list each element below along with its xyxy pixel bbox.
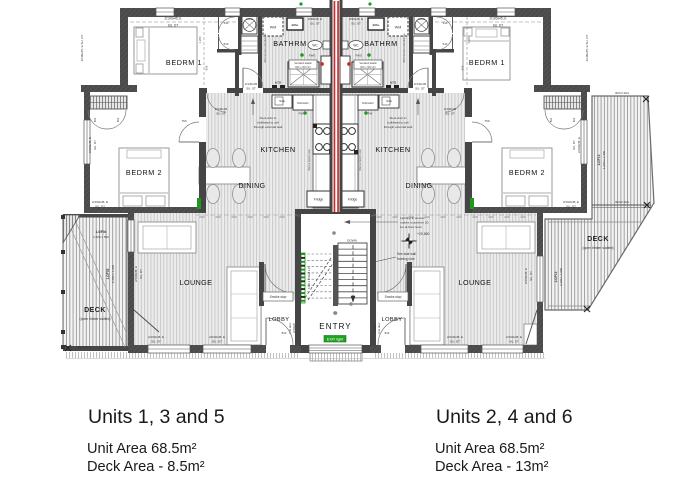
svg-text:2/90x45; E: 2/90x45; E [308, 17, 322, 21]
svg-text:SU, ST: SU, ST [151, 340, 161, 344]
svg-text:HTR: HTR [390, 81, 397, 85]
svg-text:510: 510 [224, 21, 229, 25]
svg-text:Smoke stop: Smoke stop [270, 295, 287, 299]
svg-text:Units 1, 3 and 5: Units 1, 3 and 5 [88, 406, 225, 428]
svg-text:SU, DT: SU, DT [572, 140, 576, 150]
svg-text:DECK: DECK [587, 236, 609, 243]
svg-text:908: 908 [461, 65, 465, 70]
svg-text:810: 810 [385, 331, 390, 335]
svg-text:2/140x45: 2/140x45 [245, 82, 258, 86]
svg-text:1,280: 1,280 [467, 36, 471, 43]
svg-text:HTR: HTR [275, 81, 282, 85]
svg-text:through external wall: through external wall [384, 125, 413, 129]
svg-text:DU, DT: DU, DT [450, 340, 460, 344]
svg-text:2-GF13: 2-GF13 [597, 154, 601, 165]
svg-text:Sink: Sink [386, 99, 392, 103]
svg-text:2400: 2400 [263, 216, 269, 219]
svg-text:framing note: framing note [397, 257, 415, 261]
svg-text:BEDRM 2: BEDRM 2 [126, 168, 162, 177]
svg-text:+20,650: +20,650 [417, 232, 429, 236]
svg-text:makes to achieve 20: makes to achieve 20 [400, 221, 429, 225]
svg-text:2400: 2400 [504, 216, 510, 219]
svg-text:2/140x45: 2/140x45 [444, 107, 457, 111]
svg-text:Deck Area - 13m²: Deck Area - 13m² [435, 459, 549, 475]
svg-text:2400: 2400 [440, 216, 446, 219]
svg-text:90x6.0 SHS: 90x6.0 SHS [615, 200, 629, 204]
svg-text:BEDRM 1: BEDRM 1 [469, 58, 505, 67]
svg-text:2,100 x 1,600: 2,100 x 1,600 [111, 265, 115, 284]
svg-text:Dishwshr: Dishwshr [362, 101, 374, 105]
svg-text:BATHRM: BATHRM [364, 39, 397, 48]
svg-text:2/190x45; E: 2/190x45; E [88, 137, 92, 153]
svg-text:Bths: Bths [292, 23, 299, 27]
svg-text:510: 510 [224, 42, 229, 46]
svg-text:90x6.0 SHS: 90x6.0 SHS [77, 345, 91, 349]
svg-text:Units 2, 4 and 6: Units 2, 4 and 6 [436, 406, 573, 428]
svg-text:Unit Area 68.5m²: Unit Area 68.5m² [435, 441, 545, 457]
svg-text:KITCHEN: KITCHEN [375, 145, 410, 154]
svg-text:lux at floor level: lux at floor level [400, 225, 422, 229]
svg-text:BEDRM 1: BEDRM 1 [166, 58, 202, 67]
svg-text:2/190x45; E: 2/190x45; E [524, 268, 528, 284]
svg-text:1,500 x 500: 1,500 x 500 [93, 235, 109, 239]
svg-text:SU, DT: SU, DT [168, 24, 179, 28]
svg-text:2/190x45; E SU, DT: 2/190x45; E SU, DT [80, 34, 84, 61]
svg-text:SU, ST: SU, ST [216, 112, 226, 116]
svg-text:810: 810 [572, 117, 576, 122]
svg-text:900 x 900 shr: 900 x 900 shr [295, 65, 311, 69]
svg-text:510: 510 [443, 42, 448, 46]
svg-text:WC: WC [312, 44, 318, 48]
svg-text:SU, DT: SU, DT [493, 24, 504, 28]
svg-text:Vented stack: Vented stack [294, 61, 312, 65]
svg-text:SU, ST: SU, ST [509, 340, 519, 344]
svg-text:1-GF04: 1-GF04 [96, 230, 107, 234]
svg-text:bulkhead to ceil: bulkhead to ceil [387, 121, 409, 125]
svg-text:through external wall: through external wall [254, 125, 283, 129]
svg-text:LOBBY: LOBBY [269, 317, 290, 323]
svg-text:(open timber slatted): (open timber slatted) [582, 246, 613, 250]
svg-text:DINING: DINING [239, 183, 266, 190]
svg-text:SU, DT: SU, DT [529, 271, 533, 281]
svg-text:2/140x5: 2/140x5 [292, 323, 296, 333]
svg-text:DU, DT: DU, DT [212, 340, 222, 344]
svg-text:SU, DT: SU, DT [139, 269, 143, 279]
svg-text:2400: 2400 [376, 216, 382, 219]
svg-text:Sink: Sink [279, 99, 285, 103]
svg-text:2400: 2400 [199, 216, 205, 219]
svg-text:2400: 2400 [520, 216, 526, 219]
svg-text:2/190x45; E: 2/190x45; E [577, 137, 581, 153]
svg-text:2-GF13: 2-GF13 [554, 271, 558, 282]
svg-text:1,280: 1,280 [198, 36, 202, 43]
svg-text:2/240x45; E: 2/240x45; E [447, 335, 463, 339]
svg-text:bulkhead to ceil: bulkhead to ceil [257, 121, 279, 125]
svg-text:WM: WM [395, 26, 401, 30]
svg-text:FW: FW [368, 112, 373, 116]
svg-text:510: 510 [443, 21, 448, 25]
svg-text:2,100 x 1,600: 2,100 x 1,600 [559, 268, 563, 287]
svg-text:DECK: DECK [84, 307, 106, 314]
svg-text:Smoke stop: Smoke stop [385, 295, 402, 299]
svg-text:DOWN: DOWN [347, 239, 357, 243]
svg-text:2/190x45; E: 2/190x45; E [148, 335, 164, 339]
svg-text:2/190x45; E: 2/190x45; E [563, 200, 579, 204]
svg-text:1-GF03: 1-GF03 [106, 268, 110, 279]
svg-text:See stair wall: See stair wall [397, 252, 416, 256]
svg-text:KITCHEN: KITCHEN [260, 145, 295, 154]
svg-text:Vinowe bench oven: Vinowe bench oven [359, 149, 362, 171]
svg-text:2400: 2400 [456, 216, 462, 219]
svg-text:FWG: FWG [309, 54, 316, 58]
svg-text:HWC: HWC [246, 17, 253, 21]
svg-text:SU, ST: SU, ST [415, 87, 425, 91]
svg-text:2/190x45; E SU, DT: 2/190x45; E SU, DT [585, 34, 589, 61]
svg-text:FWG: FWG [355, 54, 362, 58]
svg-text:760: 760 [484, 119, 489, 123]
svg-text:2400: 2400 [247, 216, 253, 219]
svg-text:2400: 2400 [424, 216, 430, 219]
svg-text:WC: WC [353, 44, 359, 48]
svg-text:WM: WM [270, 26, 276, 30]
svg-text:Dishwshr: Dishwshr [297, 101, 309, 105]
svg-text:Bths: Bths [373, 23, 380, 27]
svg-text:FW: FW [299, 112, 304, 116]
svg-text:SU, ST: SU, ST [445, 112, 455, 116]
svg-text:Vinowe bench oven: Vinowe bench oven [308, 149, 311, 171]
svg-text:810: 810 [549, 117, 553, 122]
svg-text:HWC: HWC [418, 17, 425, 21]
svg-text:FGB x 8 VGB x 8: FGB x 8 VGB x 8 [307, 267, 311, 289]
svg-text:LOBBY: LOBBY [382, 317, 403, 323]
svg-text:810: 810 [116, 117, 120, 122]
svg-text:Fridge: Fridge [314, 198, 324, 202]
svg-text:ENTRY: ENTRY [319, 322, 351, 331]
svg-text:2/240x45; E: 2/240x45; E [209, 335, 225, 339]
svg-text:SU, DT: SU, DT [93, 140, 97, 150]
svg-text:Flexi-duct in: Flexi-duct in [390, 116, 407, 120]
svg-text:2/190x45; E: 2/190x45; E [506, 335, 522, 339]
svg-text:2400: 2400 [279, 216, 285, 219]
svg-text:(open timber slatted): (open timber slatted) [79, 317, 110, 321]
svg-text:2400: 2400 [215, 216, 221, 219]
svg-text:810: 810 [282, 331, 287, 335]
svg-text:908: 908 [205, 65, 209, 70]
svg-text:2/190x45; E: 2/190x45; E [92, 200, 108, 204]
svg-text:SU, DT: SU, DT [95, 205, 105, 209]
svg-text:Fridge: Fridge [348, 198, 358, 202]
svg-text:2400: 2400 [392, 216, 398, 219]
svg-text:SU, DT: SU, DT [566, 205, 576, 209]
svg-text:2/90x45; E: 2/90x45; E [349, 17, 363, 21]
svg-text:LOUNGE: LOUNGE [459, 278, 492, 287]
svg-text:2400: 2400 [408, 216, 414, 219]
svg-text:2/190x45; E: 2/190x45; E [489, 17, 506, 21]
svg-text:Flexi-duct in: Flexi-duct in [260, 116, 277, 120]
svg-text:Unit Area 68.5m²: Unit Area 68.5m² [87, 441, 197, 457]
svg-text:SU, ST: SU, ST [246, 87, 256, 91]
svg-text:2400: 2400 [472, 216, 478, 219]
svg-text:Deck Area - 8.5m²: Deck Area - 8.5m² [87, 459, 205, 475]
svg-text:BEDRM 2: BEDRM 2 [509, 168, 545, 177]
svg-text:Wall mounted extraction fan: Wall mounted extraction fan [264, 33, 267, 63]
svg-text:Fire door: Fire door [377, 322, 381, 333]
svg-text:EXIT light: EXIT light [327, 338, 344, 342]
svg-text:900 x 900 shr: 900 x 900 shr [360, 65, 376, 69]
svg-text:760: 760 [181, 119, 186, 123]
svg-text:SU, ST: SU, ST [351, 22, 361, 26]
svg-text:DINING: DINING [406, 183, 433, 190]
svg-text:2/140x45: 2/140x45 [414, 82, 427, 86]
svg-text:SU, ST: SU, ST [310, 22, 320, 26]
svg-text:810: 810 [93, 117, 97, 122]
svg-text:2/190x45; E: 2/190x45; E [134, 266, 138, 282]
svg-text:1,203 x 1,400: 1,203 x 1,400 [602, 151, 606, 170]
svg-text:LOUNGE: LOUNGE [180, 278, 213, 287]
svg-text:2400: 2400 [488, 216, 494, 219]
svg-text:2/190x45; E: 2/190x45; E [164, 17, 181, 21]
svg-text:2/140x45: 2/140x45 [215, 107, 228, 111]
svg-text:2/140x5: 2/140x5 [373, 323, 377, 333]
svg-text:Vented stack: Vented stack [359, 61, 377, 65]
svg-text:BATHRM: BATHRM [273, 39, 306, 48]
svg-text:2400: 2400 [231, 216, 237, 219]
svg-text:90x6.0 SHS: 90x6.0 SHS [615, 91, 629, 95]
svg-text:Wall mounted extraction fan: Wall mounted extraction fan [403, 33, 406, 63]
